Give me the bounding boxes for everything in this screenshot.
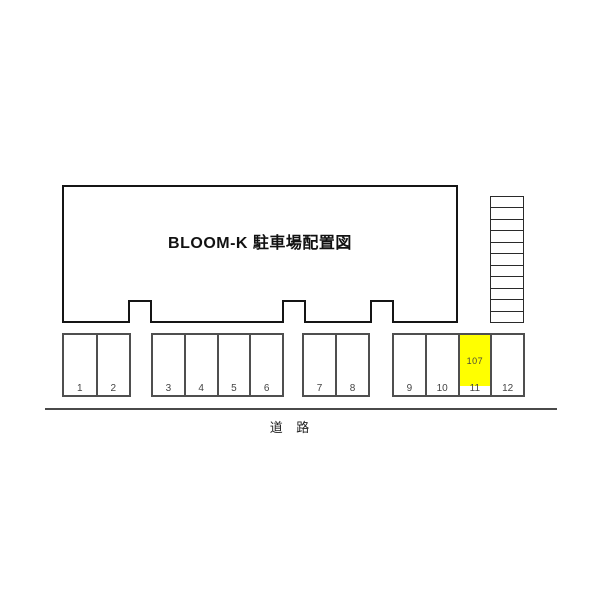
space-number: 6 <box>251 383 282 394</box>
staircase-step <box>491 220 523 231</box>
parking-space-10: 10 <box>427 335 460 395</box>
staircase-block <box>490 196 524 323</box>
unit-number-label: 107 <box>467 356 484 366</box>
diagram-title: BLOOM-K 駐車場配置図 <box>64 229 456 253</box>
parking-group-d: 9 10 107 11 12 <box>392 333 525 397</box>
staircase-step <box>491 312 523 322</box>
space-number: 1 <box>64 383 96 394</box>
parking-group-a: 1 2 <box>62 333 131 397</box>
staircase-step <box>491 197 523 208</box>
parking-space-1: 1 <box>64 335 98 395</box>
space-number: 8 <box>337 383 368 394</box>
staircase-step <box>491 254 523 265</box>
space-number: 5 <box>219 383 250 394</box>
space-number: 12 <box>492 383 523 394</box>
parking-group-b: 3 4 5 6 <box>151 333 284 397</box>
parking-space-9: 9 <box>394 335 427 395</box>
parking-layout-diagram: BLOOM-K 駐車場配置図 1 2 3 4 5 <box>0 0 600 600</box>
parking-space-8: 8 <box>337 335 368 395</box>
parking-space-4: 4 <box>186 335 219 395</box>
staircase-step <box>491 266 523 277</box>
space-number: 11 <box>460 383 491 394</box>
space-number: 4 <box>186 383 217 394</box>
parking-space-11-highlighted: 107 11 <box>460 335 493 395</box>
staircase-step <box>491 300 523 311</box>
space-number: 7 <box>304 383 335 394</box>
building-entrance-notch-3 <box>370 300 394 323</box>
staircase-step <box>491 231 523 242</box>
staircase-step <box>491 277 523 288</box>
space-number: 2 <box>98 383 130 394</box>
building-entrance-notch-2 <box>282 300 306 323</box>
parking-space-7: 7 <box>304 335 337 395</box>
highlight-fill: 107 <box>460 335 491 386</box>
parking-space-3: 3 <box>153 335 186 395</box>
parking-space-5: 5 <box>219 335 252 395</box>
building-outline: BLOOM-K 駐車場配置図 <box>62 185 458 323</box>
staircase-step <box>491 289 523 300</box>
parking-space-6: 6 <box>251 335 282 395</box>
parking-space-12: 12 <box>492 335 523 395</box>
staircase-step <box>491 243 523 254</box>
space-number: 9 <box>394 383 425 394</box>
parking-group-c: 7 8 <box>302 333 370 397</box>
space-number: 10 <box>427 383 458 394</box>
road-line <box>45 408 557 410</box>
building-entrance-notch-1 <box>128 300 152 323</box>
space-number: 3 <box>153 383 184 394</box>
staircase-step <box>491 208 523 219</box>
parking-space-2: 2 <box>98 335 130 395</box>
road-label: 道 路 <box>212 417 372 436</box>
